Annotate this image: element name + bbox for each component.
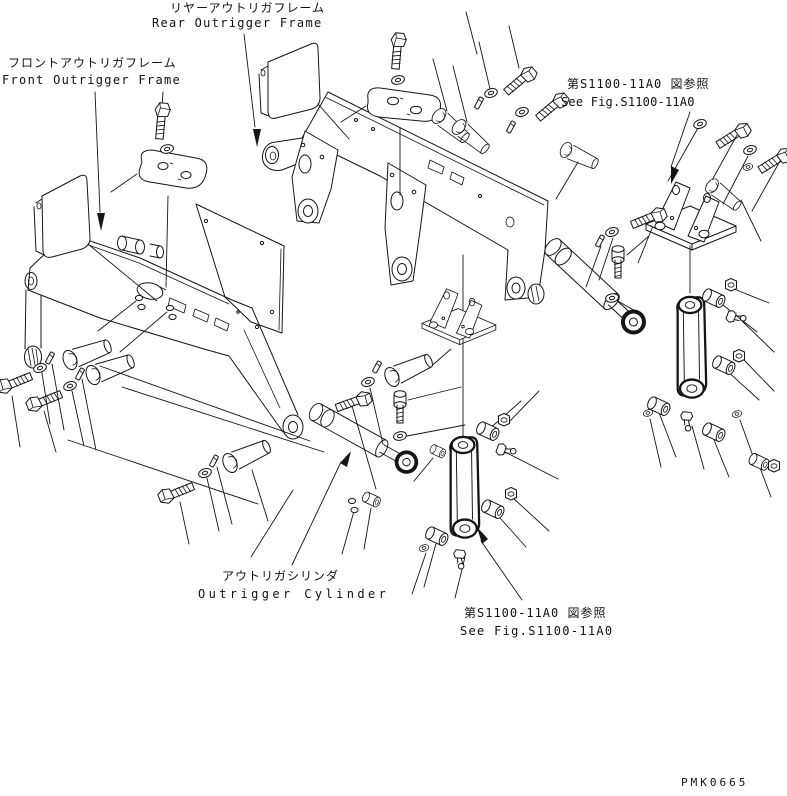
cover-plate-front bbox=[42, 175, 90, 257]
rear-outrigger-frame bbox=[259, 43, 548, 304]
front-outrigger-frame bbox=[25, 175, 304, 439]
fig-ref-bottom-label-jp: 第S1100-11A0 図参照 bbox=[464, 607, 606, 621]
cylinder-arrow-icon bbox=[340, 451, 351, 467]
fig-ref-bottom-label-en: See Fig.S1100-11A0 bbox=[460, 625, 613, 639]
cylinder-label-en: Outrigger Cylinder bbox=[198, 588, 389, 602]
top-plate-rear bbox=[367, 88, 440, 121]
link-plate-center bbox=[450, 437, 479, 538]
rear-frame-label-en: Rear Outrigger Frame bbox=[152, 17, 323, 31]
fig-ref-right-arrow-icon bbox=[671, 166, 679, 184]
rear-frame-label-jp: リヤーアウトリガフレーム bbox=[170, 2, 325, 16]
exploded-parts-diagram bbox=[0, 0, 787, 796]
drawing-code: PMK0665 bbox=[681, 777, 748, 790]
fig-ref-right-label-en: See Fig.S1100-11A0 bbox=[561, 96, 695, 110]
fig-ref-right-label-jp: 第S1100-11A0 図参照 bbox=[567, 78, 709, 92]
top-plate-front bbox=[139, 150, 207, 188]
front-frame-arrow-icon bbox=[97, 213, 105, 231]
rear-frame-arrow-icon bbox=[253, 129, 261, 147]
front-frame-label-jp: フロントアウトリガフレーム bbox=[8, 57, 177, 71]
cylinder-label-jp: アウトリガシリンダ bbox=[222, 570, 339, 584]
mounting-bracket-center bbox=[422, 289, 496, 345]
parts-diagram-page: リヤーアウトリガフレーム Rear Outrigger Frame フロントアウ… bbox=[0, 0, 787, 796]
fig-ref-bottom-arrow-icon bbox=[477, 527, 488, 544]
front-frame-label-en: Front Outrigger Frame bbox=[2, 74, 181, 88]
cover-plate-rear bbox=[268, 43, 320, 118]
link-plate-right bbox=[677, 297, 706, 398]
